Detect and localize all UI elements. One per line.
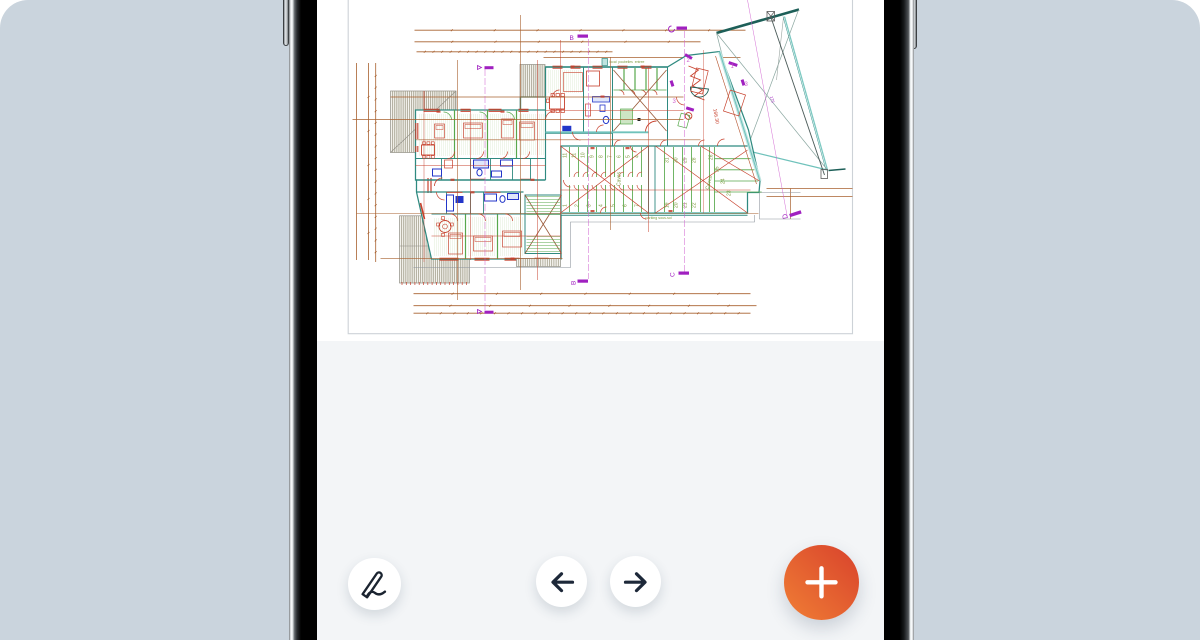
svg-text:22: 22 (691, 202, 697, 208)
svg-text:25: 25 (714, 166, 720, 172)
svg-text:6: 6 (616, 155, 622, 158)
svg-text:1: 1 (562, 204, 568, 207)
svg-text:23: 23 (726, 190, 732, 196)
svg-text:5: 5 (625, 155, 631, 158)
svg-text:parking sous-sol: parking sous-sol (645, 216, 671, 220)
svg-text:3: 3 (586, 204, 592, 207)
svg-text:20: 20 (673, 202, 679, 208)
svg-text:19: 19 (664, 202, 670, 208)
svg-text:B: B (569, 35, 573, 42)
svg-text:21: 21 (682, 202, 688, 208)
svg-text:26: 26 (708, 154, 714, 160)
svg-text:10: 10 (580, 152, 586, 158)
svg-text:31: 31 (664, 157, 670, 163)
svg-text:local poubelles entree: local poubelles entree (609, 60, 644, 64)
svg-text:11: 11 (571, 153, 577, 158)
svg-text:9: 9 (589, 155, 595, 158)
svg-text:30: 30 (673, 157, 679, 163)
svg-text:Caves: Caves (616, 171, 622, 186)
svg-text:24: 24 (720, 178, 726, 184)
svg-text:C: C (669, 272, 676, 277)
svg-text:11: 11 (562, 153, 568, 158)
svg-text:28: 28 (691, 157, 697, 163)
svg-text:4: 4 (634, 155, 640, 158)
svg-text:4: 4 (598, 204, 604, 207)
svg-text:6: 6 (622, 204, 628, 207)
svg-text:B: B (570, 281, 577, 285)
svg-text:5: 5 (610, 204, 616, 207)
svg-text:8: 8 (598, 155, 604, 158)
svg-text:7: 7 (634, 204, 640, 207)
svg-text:29: 29 (682, 157, 688, 163)
svg-text:2: 2 (574, 204, 580, 207)
